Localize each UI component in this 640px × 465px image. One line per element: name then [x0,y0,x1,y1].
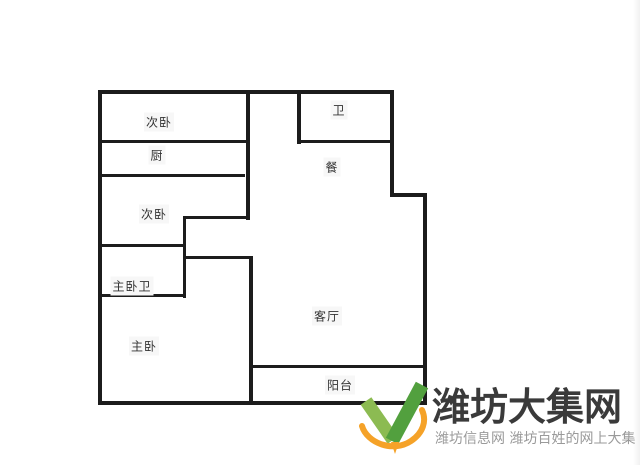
room-label-secondary-bedroom-mid: 次卧 [139,205,169,224]
site-logo: 潍坊大集网 潍坊信息网 潍坊百姓的网上大集 [359,377,640,465]
wall-bedroom1-bottom [98,140,250,143]
wall-bedroom2-bottom [98,244,186,247]
wall-outer-right-lower [423,193,427,405]
room-label-master-bathroom: 主卧卫 [110,277,153,296]
room-label-kitchen: 厨 [148,146,165,165]
room-label-master-bedroom: 主卧 [129,337,159,356]
room-label-secondary-bedroom-top: 次卧 [144,113,174,132]
wall-kitchen-bottom [98,174,245,177]
wall-living-step [183,256,253,259]
site-logo-tagline: 潍坊信息网 潍坊百姓的网上大集 [435,431,635,447]
room-label-living-room: 客厅 [312,307,342,326]
wall-bath-left [297,90,301,144]
wall-outer-right-upper [390,90,394,196]
right-edge-artifact [633,0,640,465]
wall-bedroom2-step [183,216,250,219]
site-logo-name: 潍坊大集网 [432,387,622,427]
room-label-balcony: 阳台 [325,376,355,395]
room-label-bathroom: 卫 [330,101,347,120]
wall-balcony-top [251,365,423,368]
wall-master-right [249,256,253,405]
room-label-dining: 餐 [323,158,340,177]
wall-bath-bottom [297,140,393,143]
wall-outer-right-step [390,193,427,197]
checkmark-logo-icon [359,379,431,455]
floorplan-image: 次卧 厨 次卧 主卧卫 主卧 卫 餐 客厅 阳台 潍坊大集网 潍坊信息网 潍坊百… [0,0,640,465]
wall-outer-left [98,90,102,405]
wall-hall-left [246,90,250,220]
